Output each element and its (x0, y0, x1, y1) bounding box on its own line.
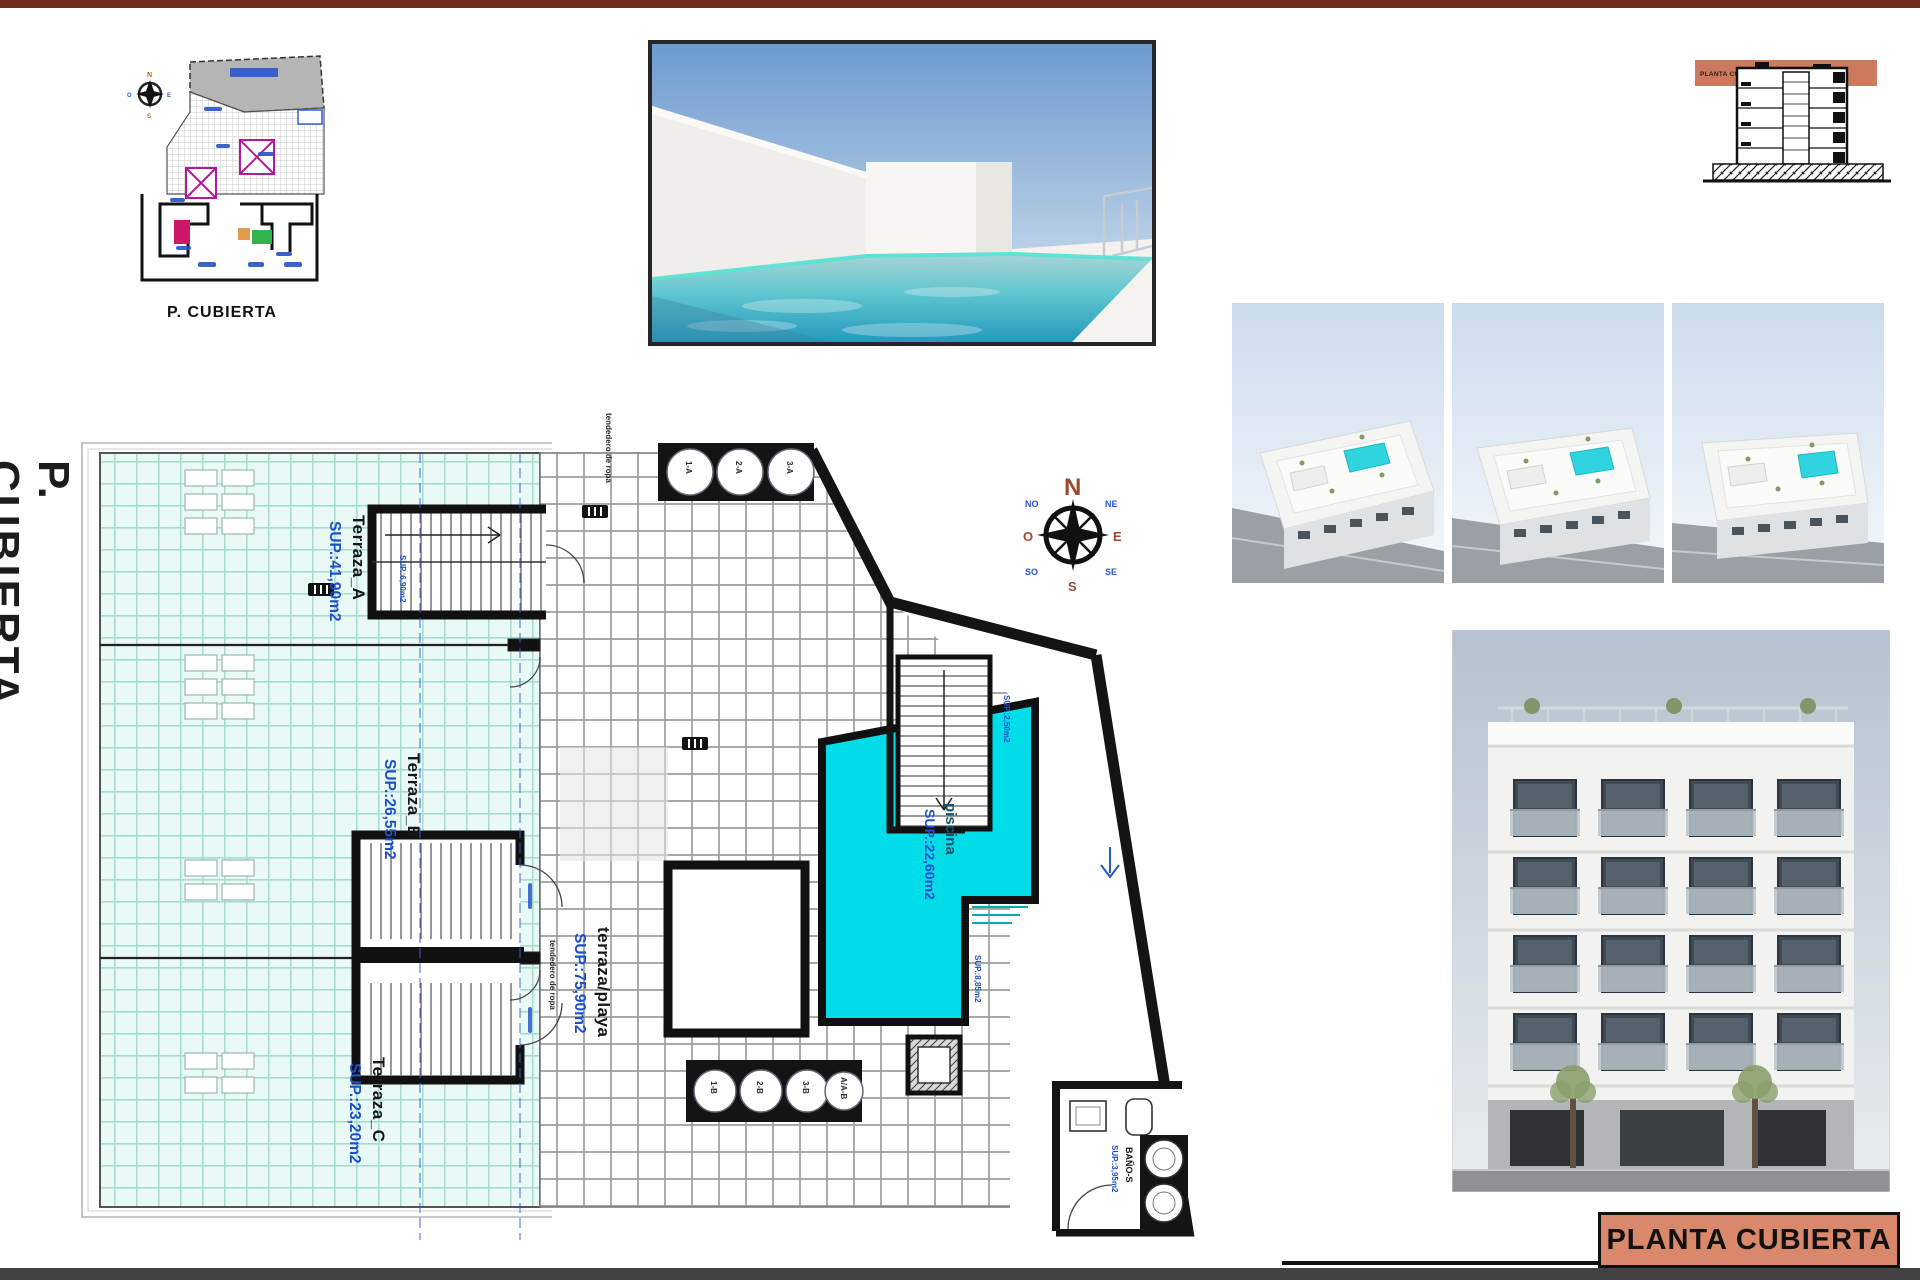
svg-text:SUP.:8,85m2: SUP.:8,85m2 (973, 955, 982, 1003)
terraza-c-area: SUP.:23,20m2 (346, 1063, 363, 1164)
svg-text:S: S (147, 114, 151, 120)
pool-render-photo (648, 40, 1156, 346)
svg-text:3-B: 3-B (801, 1081, 810, 1094)
sheet-title: PLANTA CUBIERTA (1606, 1224, 1891, 1257)
vent-box-top: 1-A 2-A 3-A (658, 443, 814, 501)
vent-box-bottom: 1-B 2-B 3-B A/A-B (686, 1060, 863, 1122)
skylight-square (668, 865, 805, 1033)
svg-text:SUP.:6,90m2: SUP.:6,90m2 (398, 555, 407, 603)
deck-name: terraza/playa (594, 927, 613, 1037)
site-compass: N S E O (127, 72, 171, 120)
terraza-a-name: Terraza_A (349, 515, 368, 600)
sheet-title-block: PLANTA CUBIERTA (1598, 1212, 1900, 1268)
bottom-accent-bar (0, 1268, 1920, 1280)
section-building (1737, 68, 1847, 166)
terraza-c-name: Terraza_C (369, 1057, 388, 1142)
pool-name: piscina (942, 803, 959, 855)
terraza-b-name: Terraza_B (404, 753, 423, 838)
facade-street (1452, 1170, 1890, 1192)
compass-se: SE (1105, 567, 1117, 577)
svg-text:O: O (127, 93, 132, 99)
top-accent-bar (0, 0, 1920, 8)
aerial-render-2 (1452, 303, 1664, 583)
svg-text:tendedero de ropa: tendedero de ropa (548, 940, 557, 1010)
site-lower-units (142, 194, 317, 280)
deck-area-label: SUP.:75,90m2 (571, 933, 588, 1034)
svg-text:E: E (167, 93, 171, 99)
svg-text:2-B: 2-B (755, 1081, 764, 1094)
svg-text:N: N (147, 72, 152, 79)
svg-text:2-A: 2-A (734, 461, 743, 474)
sheet-side-label: P. CUBIERTA (18, 460, 78, 760)
compass-so: SO (1025, 567, 1038, 577)
aerial-render-3 (1672, 303, 1884, 583)
compass-o: O (1023, 529, 1033, 544)
svg-text:tendedero de ropa: tendedero de ropa (604, 413, 613, 483)
roof-floor-plan: 1-A 2-A 3-A 1-B 2-B 3-B A/A-B SUP.:6,90m… (70, 395, 1195, 1250)
compass-ne: NE (1105, 499, 1118, 509)
section-drawing: PLANTA CUBIERTA (1695, 38, 1895, 190)
facade-render-photo (1452, 630, 1890, 1192)
section-ground-hatch (1713, 164, 1883, 180)
site-plan-caption: P. CUBIERTA (142, 304, 302, 322)
svg-text:SUP.:3,95m2: SUP.:3,95m2 (1110, 1145, 1119, 1193)
terraza-b-area: SUP.:26,55m2 (381, 759, 398, 860)
site-plan-thumbnail: N S E O (112, 52, 332, 304)
compass-rose: N S E O NO NE SO SE (1023, 474, 1122, 594)
svg-text:A/A-B: A/A-B (839, 1077, 848, 1099)
bathroom-label: BAÑO-S (1124, 1147, 1134, 1183)
pool-area-label: SUP.:22,60m2 (922, 809, 938, 900)
aerial-render-1 (1232, 303, 1444, 583)
lift-machine-box (908, 1037, 960, 1093)
compass-no: NO (1025, 499, 1039, 509)
compass-s: S (1068, 579, 1077, 594)
plan-sheet: N S E O P. CUBIERTA (0, 0, 1920, 1280)
compass-e: E (1113, 529, 1122, 544)
svg-text:3-A: 3-A (785, 461, 794, 474)
svg-text:1-A: 1-A (684, 461, 693, 474)
compass-n: N (1064, 474, 1081, 501)
bathroom: BAÑO-S SUP.:3,95m2 (1060, 1089, 1188, 1229)
terraza-a-area: SUP.:41,90m2 (326, 521, 343, 622)
svg-text:SUP.:2,50m2: SUP.:2,50m2 (1002, 695, 1011, 743)
svg-text:1-B: 1-B (709, 1081, 718, 1094)
